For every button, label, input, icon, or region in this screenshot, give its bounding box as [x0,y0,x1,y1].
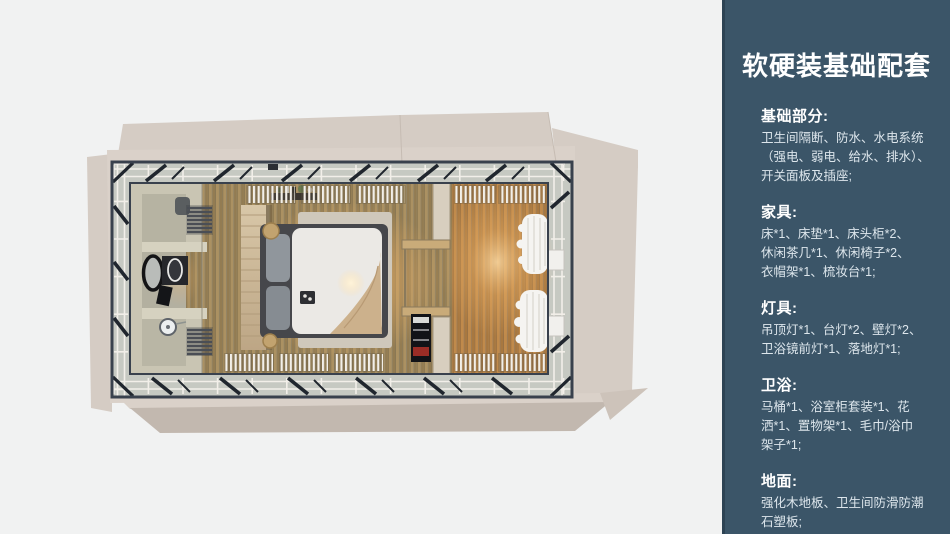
section-basics: 基础部分: 卫生间隔断、防水、水电系统 （强电、弱电、给水、排水）、 开关面板及… [761,105,940,186]
pillow [266,234,290,282]
section-heading: 地面: [761,470,940,491]
red-books [413,347,429,356]
spec-sections: 基础部分: 卫生间隔断、防水、水电系统 （强电、弱电、给水、排水）、 开关面板及… [761,105,940,532]
side-table [548,316,564,336]
pillow [266,286,290,330]
spec-sidebar: 软硬装基础配套 基础部分: 卫生间隔断、防水、水电系统 （强电、弱电、给水、排水… [722,0,950,534]
section-lighting: 灯具: 吊顶灯*1、台灯*2、壁灯*2、 卫浴镜前灯*1、落地灯*1; [761,297,940,359]
section-flooring: 地面: 强化木地板、卫生间防滑防潮 石塑板; [761,470,940,532]
table-lamp-glow [337,269,365,297]
section-heading: 家具: [761,201,940,222]
section-heading: 基础部分: [761,105,940,126]
wall-shelf [402,240,450,249]
sidebar-title: 软硬装基础配套 [742,46,940,83]
bed [260,212,392,348]
section-body: 强化木地板、卫生间防滑防潮 石塑板; [761,494,940,532]
round-mirror [144,256,163,290]
bed-tray [300,291,315,304]
side-table [548,250,564,270]
section-heading: 灯具: [761,297,940,318]
section-sanitary: 卫浴: 马桶*1、浴室柜套装*1、花 洒*1、置物架*1、毛巾/浴巾 架子*1; [761,374,940,455]
bathroom [130,183,213,374]
floorplan-render [0,0,722,534]
rattan-basket [263,334,277,348]
section-body: 卫生间隔断、防水、水电系统 （强电、弱电、给水、排水）、 开关面板及插座; [761,129,940,186]
ladder-rack [411,314,431,362]
section-body: 马桶*1、浴室柜套装*1、花 洒*1、置物架*1、毛巾/浴巾 架子*1; [761,398,940,455]
section-body: 吊顶灯*1、台灯*2、壁灯*2、 卫浴镜前灯*1、落地灯*1; [761,321,940,359]
basin [168,259,182,281]
slide: 软硬装基础配套 基础部分: 卫生间隔断、防水、水电系统 （强电、弱电、给水、排水… [0,0,950,534]
rattan-basket [263,223,279,239]
section-heading: 卫浴: [761,374,940,395]
section-body: 床*1、床垫*1、床头柜*2、 休闲茶几*1、休闲椅子*2、 衣帽架*1、梳妆台… [761,225,940,282]
section-furniture: 家具: 床*1、床垫*1、床头柜*2、 休闲茶几*1、休闲椅子*2、 衣帽架*1… [761,201,940,282]
